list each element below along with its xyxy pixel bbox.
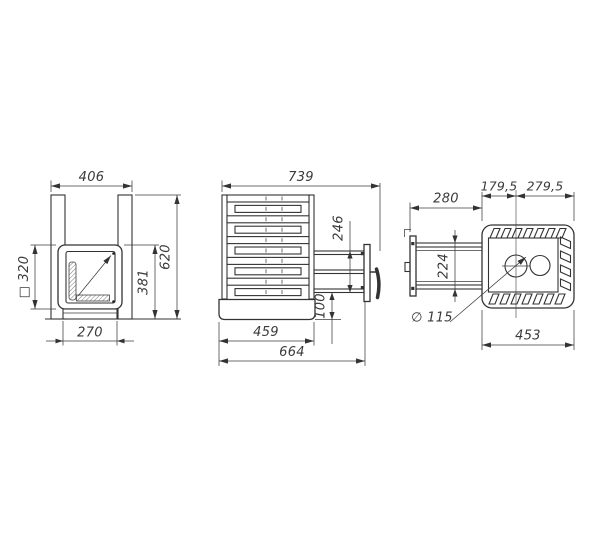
door-glass-edge-vertical bbox=[69, 262, 76, 300]
side-rail-left bbox=[222, 195, 227, 299]
dim-label-320: □ 320 bbox=[17, 256, 32, 299]
dim-front-base-width: 270 bbox=[46, 321, 134, 346]
dim-label-406: 406 bbox=[79, 170, 105, 185]
corner-dot bbox=[112, 300, 115, 303]
dim-label-620: 620 bbox=[159, 244, 174, 270]
dim-label-664: 664 bbox=[279, 345, 305, 360]
door-hinge bbox=[361, 286, 364, 289]
technical-drawing: 406 620 381 □ 320 270 bbox=[0, 0, 600, 533]
dim-label-381: 381 bbox=[137, 269, 152, 295]
door-hinge bbox=[361, 252, 364, 255]
dim-top-tunnel-width: 224 bbox=[437, 230, 458, 302]
fuel-tunnel-side bbox=[314, 251, 364, 293]
door-hinge bbox=[411, 242, 414, 245]
firebox-base bbox=[219, 300, 315, 320]
dim-label-279-5: 279,5 bbox=[527, 179, 564, 194]
dim-label-453: 453 bbox=[515, 329, 541, 344]
dim-front-door-square: □ 320 bbox=[17, 245, 56, 309]
dim-top-base-depth: 453 bbox=[482, 310, 574, 350]
dim-label-459: 459 bbox=[253, 325, 279, 340]
top-view: 179,5 279,5 280 224 453 ∅ 115 bbox=[405, 179, 575, 351]
dim-front-overall-width: 406 bbox=[51, 170, 132, 192]
corner-dot bbox=[112, 252, 115, 255]
tunnel-door-side bbox=[364, 245, 370, 302]
door-handle-side bbox=[377, 269, 379, 298]
dim-front-firebox-height: 381 bbox=[124, 245, 159, 319]
door-latch bbox=[405, 263, 410, 272]
dim-side-tunnel-offset: 100 bbox=[314, 293, 342, 345]
dim-label-224: 224 bbox=[437, 253, 452, 279]
side-view: 739 246 100 459 664 bbox=[219, 170, 380, 366]
pedestal bbox=[63, 309, 117, 319]
dim-front-overall-height: 620 bbox=[135, 195, 181, 319]
convection-slats bbox=[227, 195, 309, 296]
dim-label-246: 246 bbox=[332, 215, 347, 241]
dim-label-179-5: 179,5 bbox=[481, 179, 518, 194]
door-hinge bbox=[411, 287, 414, 290]
dim-top-chimney-offsets: 179,5 279,5 bbox=[481, 179, 574, 222]
front-view: 406 620 381 □ 320 270 bbox=[17, 170, 181, 346]
dim-top-tunnel-length: 280 bbox=[410, 192, 482, 233]
dim-label-100: 100 bbox=[314, 293, 329, 319]
stone-tray bbox=[489, 238, 559, 292]
dim-label-270: 270 bbox=[77, 326, 103, 341]
dim-label-739: 739 bbox=[288, 170, 314, 185]
side-rail-right bbox=[309, 195, 314, 299]
drawing-sheet: 406 620 381 □ 320 270 bbox=[0, 0, 600, 533]
dim-label-d115: ∅ 115 bbox=[411, 311, 453, 326]
door-grate-strip bbox=[77, 295, 110, 301]
dim-label-280: 280 bbox=[433, 192, 459, 207]
